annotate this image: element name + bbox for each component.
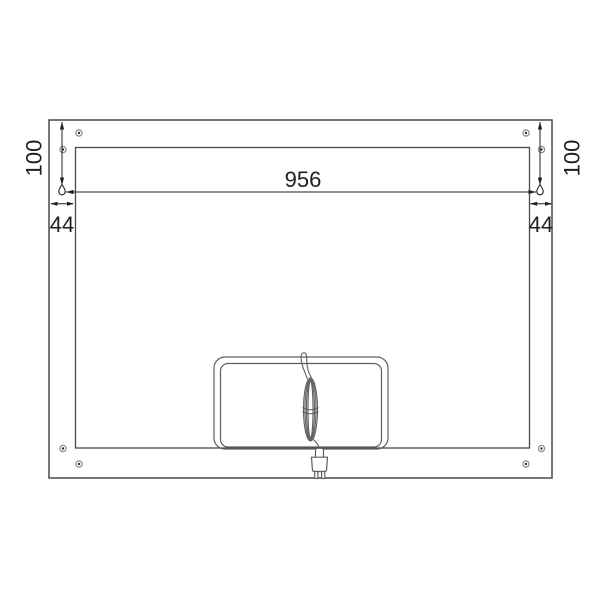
dim-label-100-right: 100 [560, 140, 585, 177]
screw-icon [538, 146, 544, 152]
screw-icon [538, 445, 544, 451]
plug-body [312, 457, 328, 471]
dim-label-956: 956 [285, 167, 322, 192]
mirror-installation-diagram: 100 100 956 44 44 [0, 0, 600, 600]
plug-prong [315, 472, 318, 479]
screw-icon [523, 130, 529, 136]
plug-neck [316, 448, 324, 457]
screw-icon [76, 461, 82, 467]
dim-label-100-left: 100 [22, 140, 47, 177]
screw-icon [523, 461, 529, 467]
diagram-canvas: 100 100 956 44 44 [0, 0, 600, 600]
dim-label-44-right: 44 [529, 212, 553, 237]
plug-prong [322, 472, 325, 479]
dim-label-44-left: 44 [50, 212, 74, 237]
screw-icon [60, 445, 66, 451]
screw-icon [60, 146, 66, 152]
screw-icon [76, 130, 82, 136]
